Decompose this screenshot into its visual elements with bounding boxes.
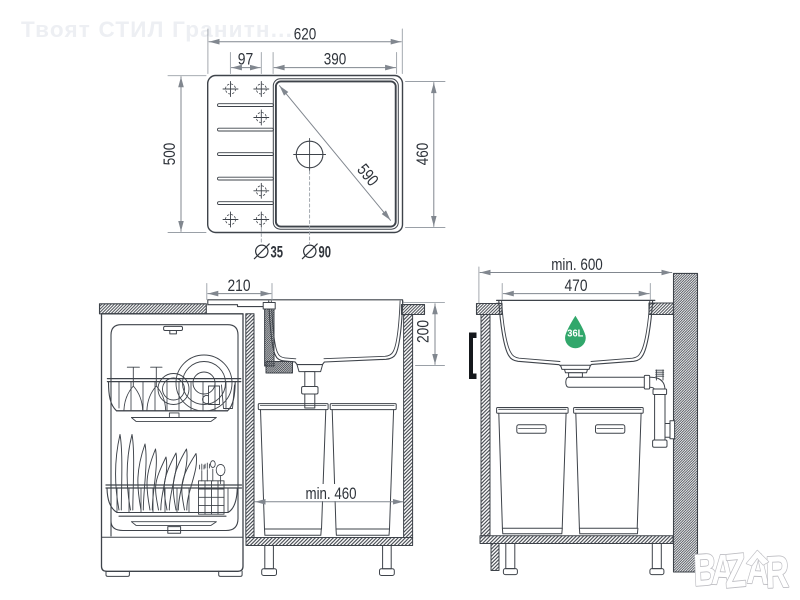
- svg-text:min. 600: min. 600: [551, 255, 603, 274]
- svg-text:620: 620: [294, 25, 317, 44]
- svg-text:200: 200: [414, 320, 433, 343]
- svg-text:min. 460: min. 460: [306, 484, 357, 503]
- svg-text:97: 97: [238, 50, 254, 69]
- svg-text:35: 35: [271, 243, 284, 262]
- svg-text:36L: 36L: [567, 327, 584, 339]
- svg-text:90: 90: [319, 243, 332, 262]
- svg-text:460: 460: [413, 143, 432, 166]
- svg-text:390: 390: [324, 50, 347, 69]
- svg-text:500: 500: [160, 143, 179, 166]
- svg-text:210: 210: [228, 276, 251, 295]
- svg-text:Z: Z: [723, 542, 747, 598]
- svg-text:R: R: [765, 548, 790, 598]
- svg-text:Твоят СТИЛ Гранитн...: Твоят СТИЛ Гранитн...: [21, 17, 293, 42]
- svg-text:470: 470: [565, 276, 588, 295]
